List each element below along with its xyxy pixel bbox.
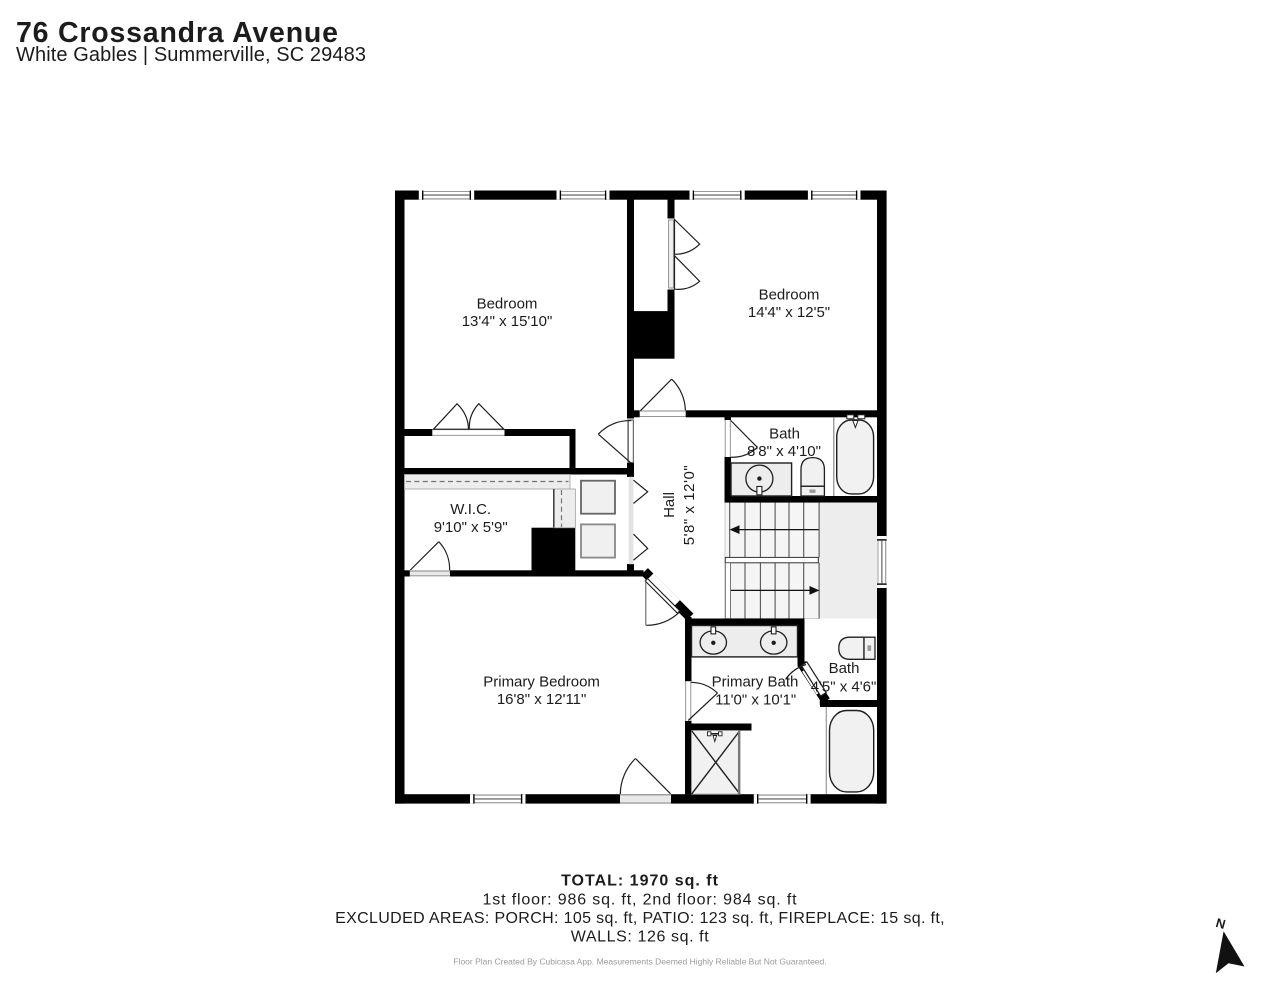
svg-text:1st floor: 986 sq. ft, 2nd flo: 1st floor: 986 sq. ft, 2nd floor: 984 sq… (483, 891, 798, 908)
svg-text:Hall: Hall (661, 492, 678, 518)
svg-text:Bath: Bath (769, 426, 800, 443)
svg-text:14'4" x 12'5": 14'4" x 12'5" (748, 304, 830, 321)
svg-text:Primary Bath: Primary Bath (712, 674, 799, 691)
svg-text:Floor Plan Created By Cubicasa: Floor Plan Created By Cubicasa App. Meas… (453, 957, 826, 967)
svg-text:9'10" x 5'9": 9'10" x 5'9" (434, 519, 508, 536)
svg-text:16'8" x 12'11": 16'8" x 12'11" (497, 691, 587, 708)
svg-text:Bedroom: Bedroom (759, 287, 820, 304)
svg-text:TOTAL: 1970 sq. ft: TOTAL: 1970 sq. ft (561, 873, 719, 890)
svg-text:Bath: Bath (829, 660, 860, 677)
svg-text:White Gables | Summerville, SC: White Gables | Summerville, SC 29483 (16, 44, 366, 66)
svg-text:11'0" x 10'1": 11'0" x 10'1" (715, 691, 796, 708)
svg-text:EXCLUDED AREAS: PORCH: 105 sq.: EXCLUDED AREAS: PORCH: 105 sq. ft, PATIO… (335, 910, 945, 927)
svg-text:WALLS: 126 sq. ft: WALLS: 126 sq. ft (571, 928, 710, 945)
svg-text:W.I.C.: W.I.C. (450, 501, 491, 518)
svg-text:8'8" x 4'10": 8'8" x 4'10" (747, 443, 821, 460)
svg-text:Primary Bedroom: Primary Bedroom (483, 673, 600, 690)
svg-text:4'5" x 4'6": 4'5" x 4'6" (811, 679, 877, 696)
svg-text:Bedroom: Bedroom (477, 296, 538, 313)
svg-text:5'8" x 12'0": 5'8" x 12'0" (681, 465, 698, 546)
svg-text:13'4" x 15'10": 13'4" x 15'10" (462, 313, 553, 330)
